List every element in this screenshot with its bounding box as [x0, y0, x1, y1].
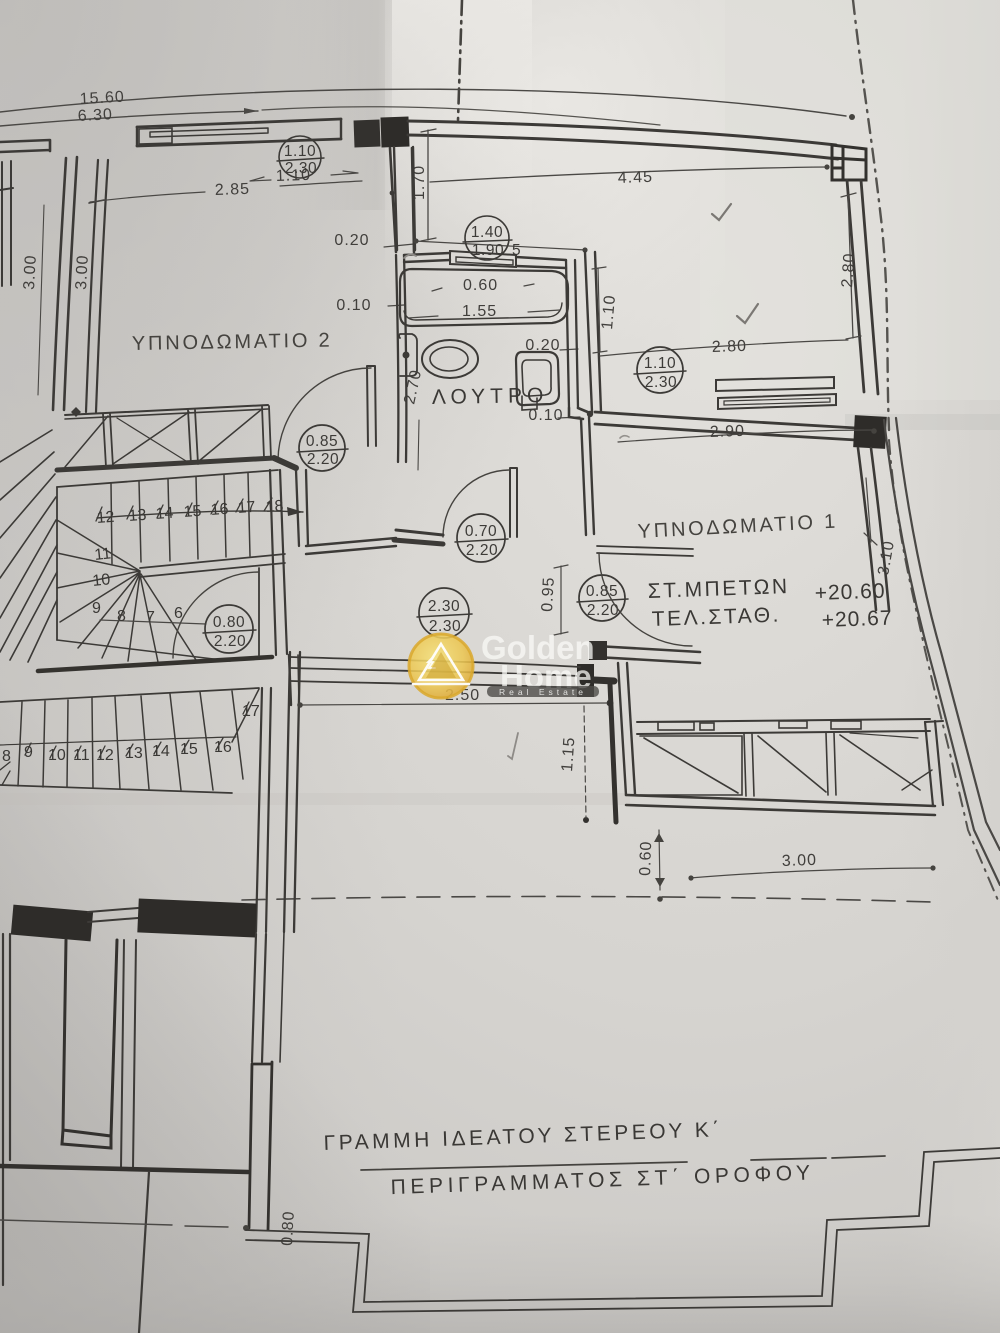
svg-text:+20.67: +20.67 — [821, 607, 893, 632]
svg-text:0.80: 0.80 — [213, 614, 245, 631]
svg-text:0.60: 0.60 — [463, 277, 498, 294]
svg-text:2.80: 2.80 — [712, 338, 748, 356]
svg-text:0.95: 0.95 — [539, 576, 558, 612]
svg-text:7: 7 — [146, 609, 155, 626]
svg-text:2.30: 2.30 — [428, 598, 460, 615]
svg-text:Real Estate: Real Estate — [499, 687, 587, 697]
svg-text:2.85: 2.85 — [215, 181, 251, 199]
svg-text:0.10: 0.10 — [528, 407, 563, 424]
svg-text:9: 9 — [92, 600, 101, 617]
svg-text:0.85: 0.85 — [306, 433, 338, 450]
svg-text:ΤΕΛ.ΣΤΑΘ.: ΤΕΛ.ΣΤΑΘ. — [651, 604, 781, 631]
svg-text:18: 18 — [265, 498, 284, 516]
svg-text:6: 6 — [174, 605, 183, 622]
svg-text:3.00: 3.00 — [21, 254, 40, 290]
svg-text:0.70: 0.70 — [465, 523, 497, 540]
svg-text:14: 14 — [152, 743, 170, 760]
svg-text:2.90: 2.90 — [710, 423, 746, 441]
svg-text:16: 16 — [214, 739, 232, 756]
svg-text:2.80: 2.80 — [839, 252, 858, 288]
svg-text:0.85: 0.85 — [586, 583, 618, 600]
svg-text:15: 15 — [183, 503, 202, 521]
svg-text:12: 12 — [96, 747, 114, 764]
svg-text:5: 5 — [512, 242, 521, 259]
svg-text:10: 10 — [92, 571, 112, 590]
svg-text:8: 8 — [117, 608, 126, 625]
svg-text:1.10: 1.10 — [599, 294, 619, 330]
svg-text:2.30: 2.30 — [645, 374, 677, 391]
svg-text:15: 15 — [180, 741, 198, 758]
svg-text:2.30: 2.30 — [285, 160, 317, 177]
svg-text:2.20: 2.20 — [307, 451, 339, 468]
svg-text:1.10: 1.10 — [644, 355, 676, 372]
svg-text:1.90: 1.90 — [472, 242, 504, 259]
svg-text:3.00: 3.00 — [782, 852, 818, 870]
svg-text:11: 11 — [94, 545, 112, 564]
svg-text:0.20: 0.20 — [334, 232, 369, 249]
svg-text:2.20: 2.20 — [214, 633, 246, 650]
svg-text:1.10: 1.10 — [284, 143, 316, 160]
svg-text:15.60: 15.60 — [79, 89, 125, 108]
svg-text:ΛΟΥΤΡΟ: ΛΟΥΤΡΟ — [432, 384, 549, 409]
svg-text:12: 12 — [96, 509, 115, 527]
svg-text:2.30: 2.30 — [429, 618, 461, 635]
svg-text:0.20: 0.20 — [525, 337, 560, 354]
svg-text:3.00: 3.00 — [73, 254, 92, 290]
svg-text:14: 14 — [155, 505, 174, 523]
svg-text:1.15: 1.15 — [559, 736, 578, 772]
svg-text:6.30: 6.30 — [77, 106, 113, 125]
svg-text:0.10: 0.10 — [336, 297, 371, 314]
svg-text:4.45: 4.45 — [618, 169, 654, 187]
svg-text:2.20: 2.20 — [466, 542, 498, 559]
svg-text:0.60: 0.60 — [637, 840, 655, 876]
svg-text:11: 11 — [73, 747, 90, 764]
svg-text:1.40: 1.40 — [471, 224, 503, 241]
svg-text:17: 17 — [237, 499, 256, 517]
svg-text:ΥΠΝΟΔΩΜΑΤΙΟ 2: ΥΠΝΟΔΩΜΑΤΙΟ 2 — [132, 330, 333, 355]
svg-text:1.55: 1.55 — [462, 303, 497, 320]
svg-text:+20.60: +20.60 — [814, 580, 886, 605]
